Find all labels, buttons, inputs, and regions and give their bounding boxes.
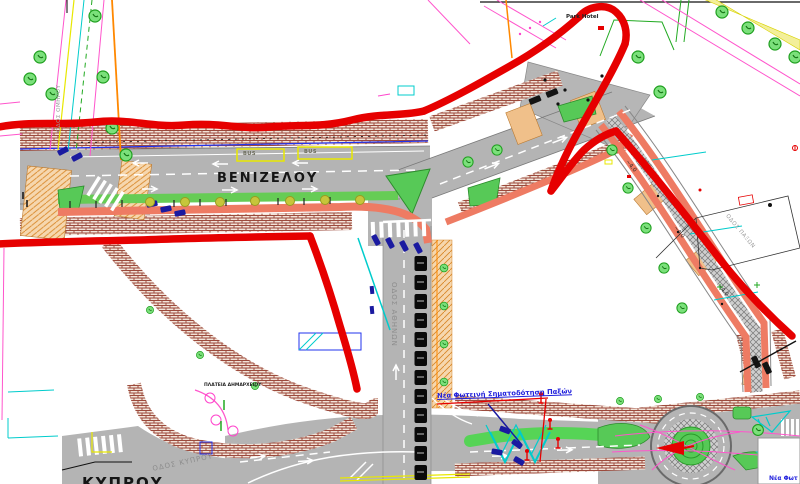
street-label-venizelou: ΒΕΝΙΖΕΛΟΥ — [217, 172, 318, 185]
square-label: ΠΛΑΤΕΙΑ ΔΗΜΑΡΧΕΙΟΥ — [204, 384, 261, 389]
park-hotel-label: Park Hotel — [566, 15, 599, 21]
street-label-omirou: ΟΔΟΣ ΟΜΗΡΟΥ — [57, 85, 63, 132]
street-label-kyprou-large: ΚΥΠΡΟΥ — [82, 476, 164, 484]
street-label-athinon: ΟΔΟΣ ΑΘΗΝΩΝ — [390, 282, 397, 347]
plan-canvas — [0, 0, 800, 484]
cad-viewport: ΒΕΝΙΖΕΛΟΥ ΟΔΟΣ ΑΘΗΝΩΝ ΟΔΟΣ ΚΥΠΡΟΥ ΚΥΠΡΟΥ… — [0, 0, 800, 484]
signal-note-partial-label: Νέα Φωτ — [769, 476, 798, 482]
bus-bay-label-1: BUS — [243, 152, 256, 157]
bus-bay-label-2: BUS — [304, 150, 317, 155]
